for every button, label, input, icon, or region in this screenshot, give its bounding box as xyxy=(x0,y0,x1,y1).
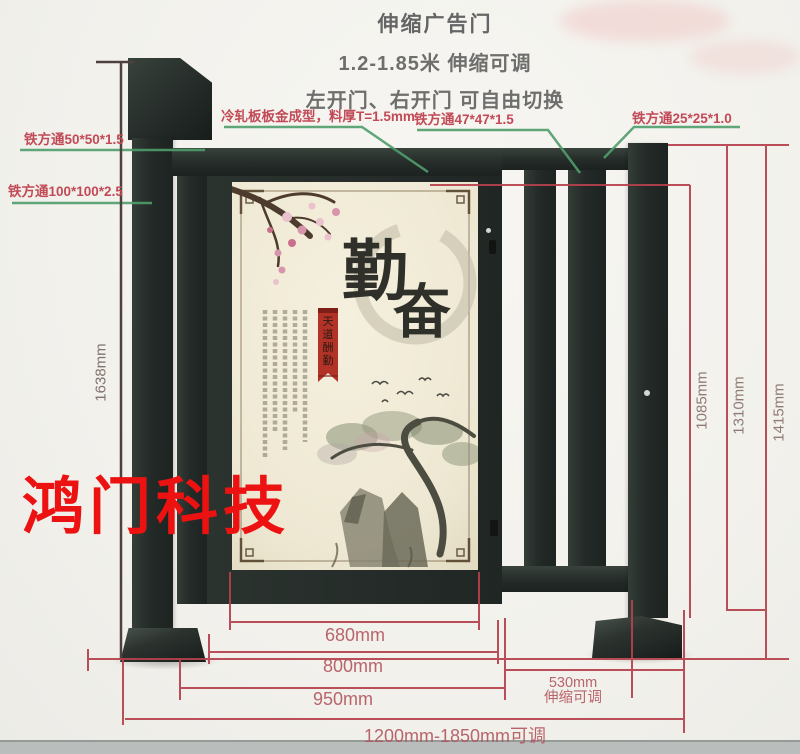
gate-top-beam xyxy=(172,148,502,176)
dim-label-1638: 1638mm xyxy=(93,338,110,408)
hinge-lower xyxy=(490,520,498,536)
dim-label-1085: 1085mm xyxy=(694,366,711,436)
right-post xyxy=(628,143,668,618)
lock-dot xyxy=(486,228,491,233)
dim-530-value: 530mm xyxy=(523,676,623,691)
seal-char: 道 xyxy=(323,327,334,341)
fence-bar xyxy=(524,170,556,566)
post-bolt-dot xyxy=(644,390,650,396)
right-post-base xyxy=(592,616,682,658)
dim-label-1415: 1415mm xyxy=(771,378,788,448)
seal-ribbon: 天 道 酬 勤 xyxy=(318,308,338,382)
product-title: 伸缩广告门 xyxy=(250,8,620,38)
dim-label-530: 530mm 伸缩可调 xyxy=(523,676,623,706)
label-tube47: 铁方通47*47*1.5 xyxy=(414,108,514,128)
left-post-base xyxy=(120,628,206,662)
product-subtitle-range: 1.2-1.85米 伸缩可调 xyxy=(250,47,620,76)
label-cold-rolled: 冷轧板板金成型，料厚T=1.5mm xyxy=(221,105,415,125)
label-tube100: 铁方通100*100*2.5 xyxy=(8,180,123,200)
left-post xyxy=(132,138,173,630)
dim-label-950: 950mm xyxy=(288,689,398,710)
seal-char: 酬 xyxy=(323,341,334,354)
label-tube50: 铁方通50*50*1.5 xyxy=(24,128,124,148)
dim-label-680: 680mm xyxy=(300,625,410,646)
lock-slot xyxy=(489,240,496,254)
dim-label-1310: 1310mm xyxy=(731,371,748,441)
label-tube25: 铁方通25*25*1.0 xyxy=(632,107,732,127)
watermark-text: 鸿门科技 xyxy=(22,456,290,546)
dim-label-total-range: 1200mm-1850mm可调 xyxy=(305,722,605,748)
advertising-gate-diagram: 勤 奋 天 道 酬 勤 xyxy=(0,0,800,754)
dim-530-note: 伸缩可调 xyxy=(523,691,623,706)
seal-char: 勤 xyxy=(323,354,334,367)
fence-bar xyxy=(568,170,606,566)
motor-housing-box xyxy=(128,58,212,140)
dim-label-800: 800mm xyxy=(298,656,408,677)
calligraphy-char-fen: 奋 xyxy=(393,280,451,345)
fence-bottom-rail xyxy=(502,566,648,592)
seal-char: 天 xyxy=(323,316,334,328)
title-block: 伸缩广告门 1.2-1.85米 伸缩可调 左开门、右开门 可自由切换 xyxy=(250,8,620,113)
pink-smudge xyxy=(690,40,800,74)
